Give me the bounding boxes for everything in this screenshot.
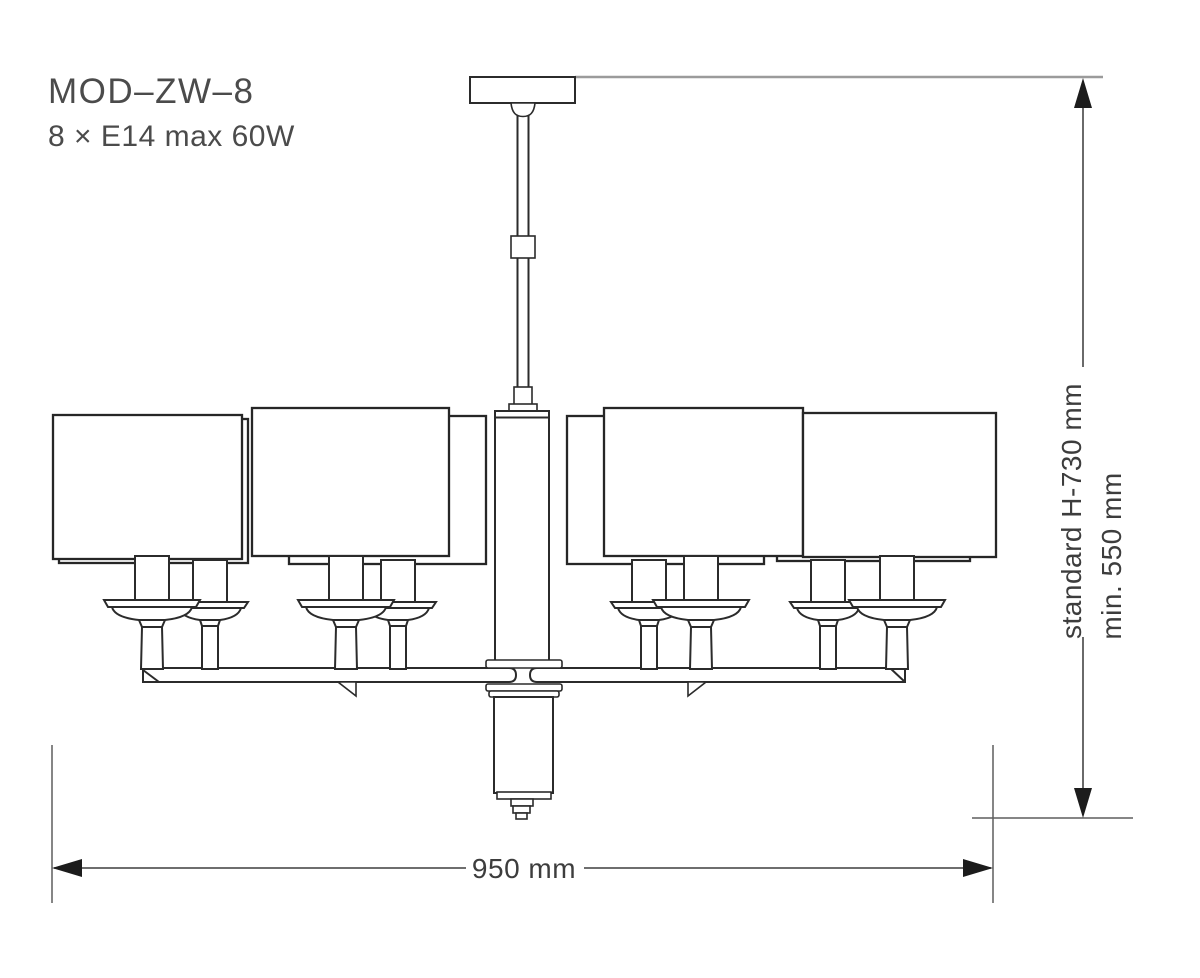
left-arm xyxy=(143,668,516,682)
lamp-shade-front-2 xyxy=(252,408,449,556)
candle-back-4 xyxy=(790,560,866,669)
central-column xyxy=(486,411,562,819)
arm-joint-right xyxy=(688,682,706,696)
column-body-upper xyxy=(495,411,549,663)
finial-step-3 xyxy=(516,813,527,819)
arrow-left-icon xyxy=(52,859,82,877)
candle-front-1 xyxy=(104,556,200,669)
technical-drawing-page: standard H-730 mm min. 550 mm 950 mm xyxy=(0,0,1200,978)
model-label: MOD–ZW–8 xyxy=(48,72,254,111)
candle-front-3 xyxy=(653,556,749,669)
hub-flange-bottom xyxy=(486,684,562,691)
arrow-down-icon xyxy=(1074,788,1092,818)
lamp-shade-front-1 xyxy=(53,415,242,559)
width-label: 950 mm xyxy=(472,853,576,884)
arrow-up-icon xyxy=(1074,78,1092,108)
canopy-dome xyxy=(511,103,535,117)
rod-connector xyxy=(511,236,535,258)
hub-flange-top xyxy=(486,660,562,668)
finial-step-1 xyxy=(511,799,533,806)
rod-collar xyxy=(514,387,532,405)
candle-front-4 xyxy=(849,556,945,669)
height-min-label: min. 550 mm xyxy=(1096,472,1127,639)
title-block: MOD–ZW–8 8 × E14 max 60W xyxy=(48,72,295,153)
candle-front-2 xyxy=(298,556,394,669)
chandelier-diagram: standard H-730 mm min. 550 mm 950 mm xyxy=(0,0,1200,978)
lamp-spec-label: 8 × E14 max 60W xyxy=(48,120,295,153)
arm-joint-left xyxy=(338,682,356,696)
height-standard-label: standard H-730 mm xyxy=(1056,383,1087,639)
hanging-rod xyxy=(509,103,537,412)
ceiling-canopy xyxy=(470,77,575,117)
column-bottom-cap xyxy=(497,792,551,799)
column-body-lower xyxy=(494,697,553,793)
lamp-shade-front-3 xyxy=(604,408,803,556)
finial-step-2 xyxy=(513,806,530,813)
lamp-shade-front-4 xyxy=(803,413,996,557)
right-arm xyxy=(530,668,905,682)
arrow-right-icon xyxy=(963,859,993,877)
